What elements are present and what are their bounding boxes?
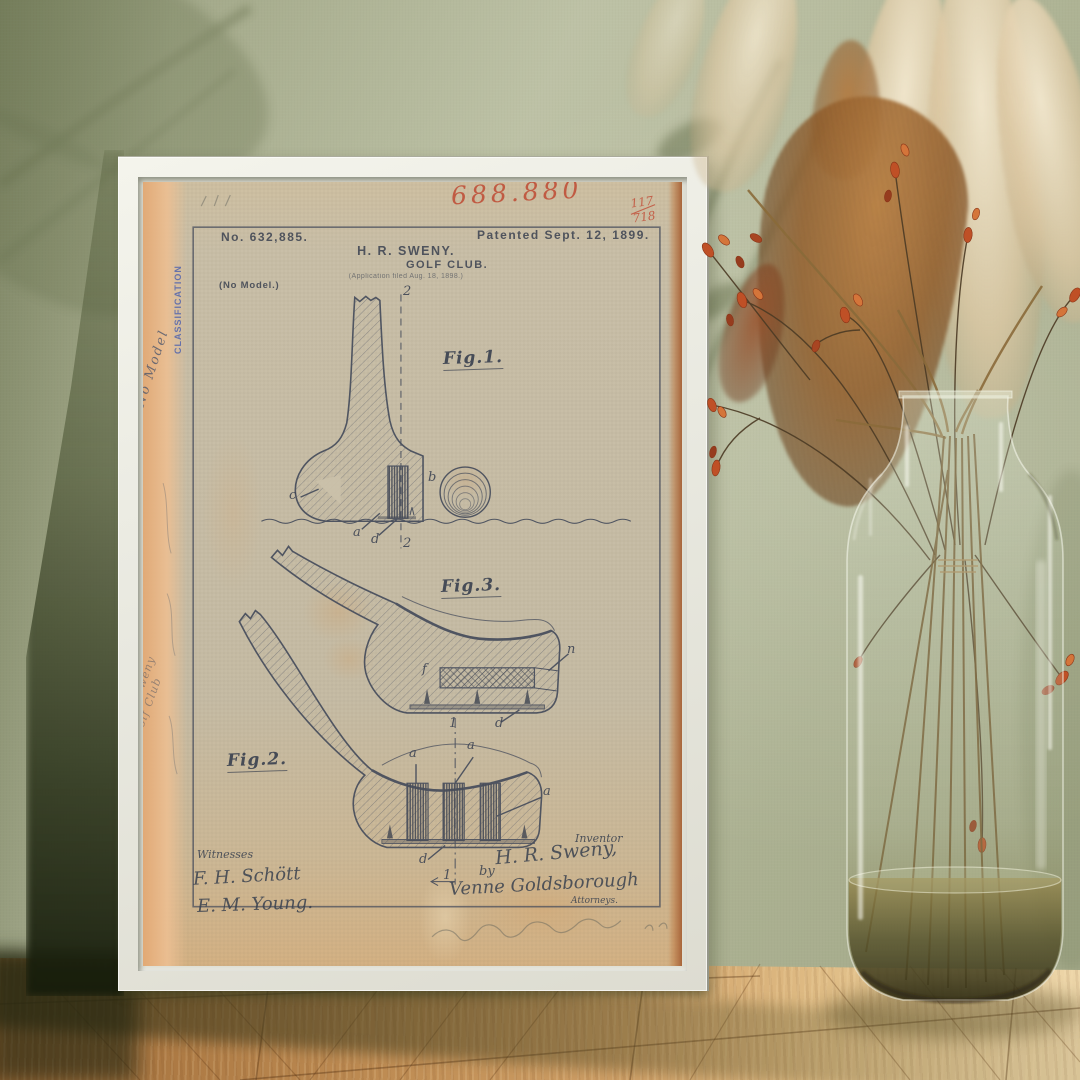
glass-vase <box>0 0 1080 1080</box>
framed-patent-scene: 688.880 117 718 No. 632,885. Patented Se… <box>0 0 1080 1080</box>
